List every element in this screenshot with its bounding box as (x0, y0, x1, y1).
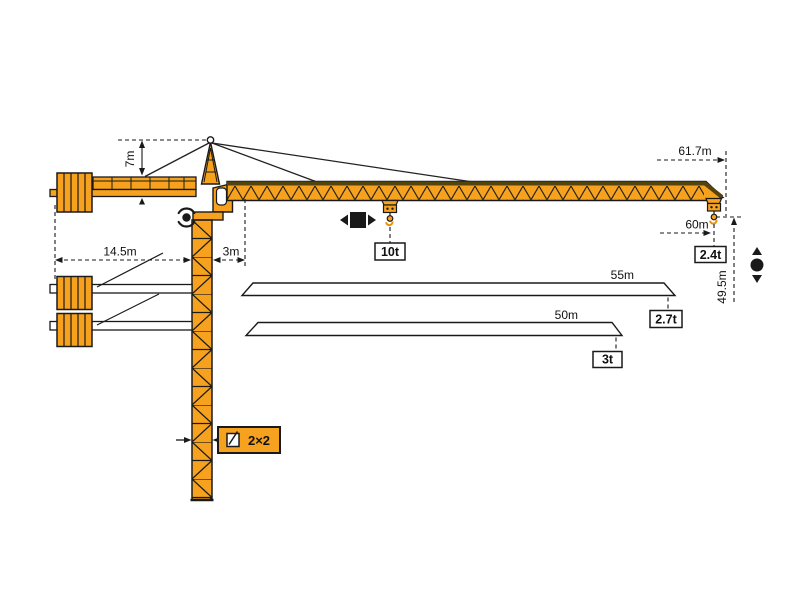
dim-counterjib-radius (55, 205, 191, 280)
jib (227, 182, 723, 201)
hook-tip-tip (710, 220, 716, 224)
hook-tip (711, 214, 717, 220)
cab-window (217, 188, 227, 205)
tip-load-badge: 2.4t (695, 247, 726, 263)
jib-option-55m-label: 55m (611, 268, 634, 282)
jib-lattice (227, 186, 704, 200)
pendant-jib-outer (212, 143, 473, 182)
pendant-counterjib (145, 143, 209, 177)
tower-mast (191, 220, 214, 500)
counterweight-block (57, 173, 92, 212)
dim-min-radius-label: 3m (223, 245, 240, 259)
turntable (193, 212, 223, 220)
max-load-badge: 10t (375, 227, 405, 260)
jib-option-50m-tip-load: 3t (602, 353, 614, 367)
counterjib-option-1 (50, 253, 192, 310)
leader-line-2 (97, 294, 159, 325)
jib-option-55m-bar (242, 283, 675, 296)
hook-mid-tip (386, 222, 392, 226)
dim-counterjib-radius-label: 14.5m (103, 245, 136, 259)
hoist-icon (751, 247, 764, 283)
tower-lattice (192, 220, 212, 500)
apex-pin (207, 137, 213, 143)
pendant-lines (145, 143, 473, 182)
tip-load-label: 2.4t (700, 248, 722, 262)
counterjib-deck (93, 177, 196, 190)
dim-head-height-label: 7m (123, 151, 137, 168)
crane-diagram-canvas: 7m 14.5m 3m 61.7m 60m 49.5m 10t (0, 0, 800, 600)
crane-diagram-page: 7m 14.5m 3m 61.7m 60m 49.5m 10t (0, 0, 800, 600)
counter-jib (50, 173, 196, 212)
tower-section-label: 2×2 (248, 433, 270, 448)
trolley-mid (382, 201, 398, 226)
tower-section-icon (227, 432, 239, 447)
jib-option-50m-label: 50m (555, 308, 578, 322)
dim-hook-height-label: 49.5m (715, 270, 729, 303)
jib-option-50m: 50m 3t (246, 308, 622, 368)
pendant-jib-inner (212, 143, 317, 182)
trolley-travel-icon (340, 212, 376, 228)
jib-option-55m: 55m 2.7t (242, 268, 682, 328)
jib-option-50m-bar (246, 323, 622, 336)
hook-mid (387, 216, 393, 222)
dim-max-radius-label: 60m (685, 218, 708, 232)
dim-jib-length-label: 61.7m (678, 144, 711, 158)
slewing-icon (179, 208, 195, 226)
max-load-label: 10t (381, 245, 400, 259)
jib-option-55m-tip-load: 2.7t (655, 313, 677, 327)
